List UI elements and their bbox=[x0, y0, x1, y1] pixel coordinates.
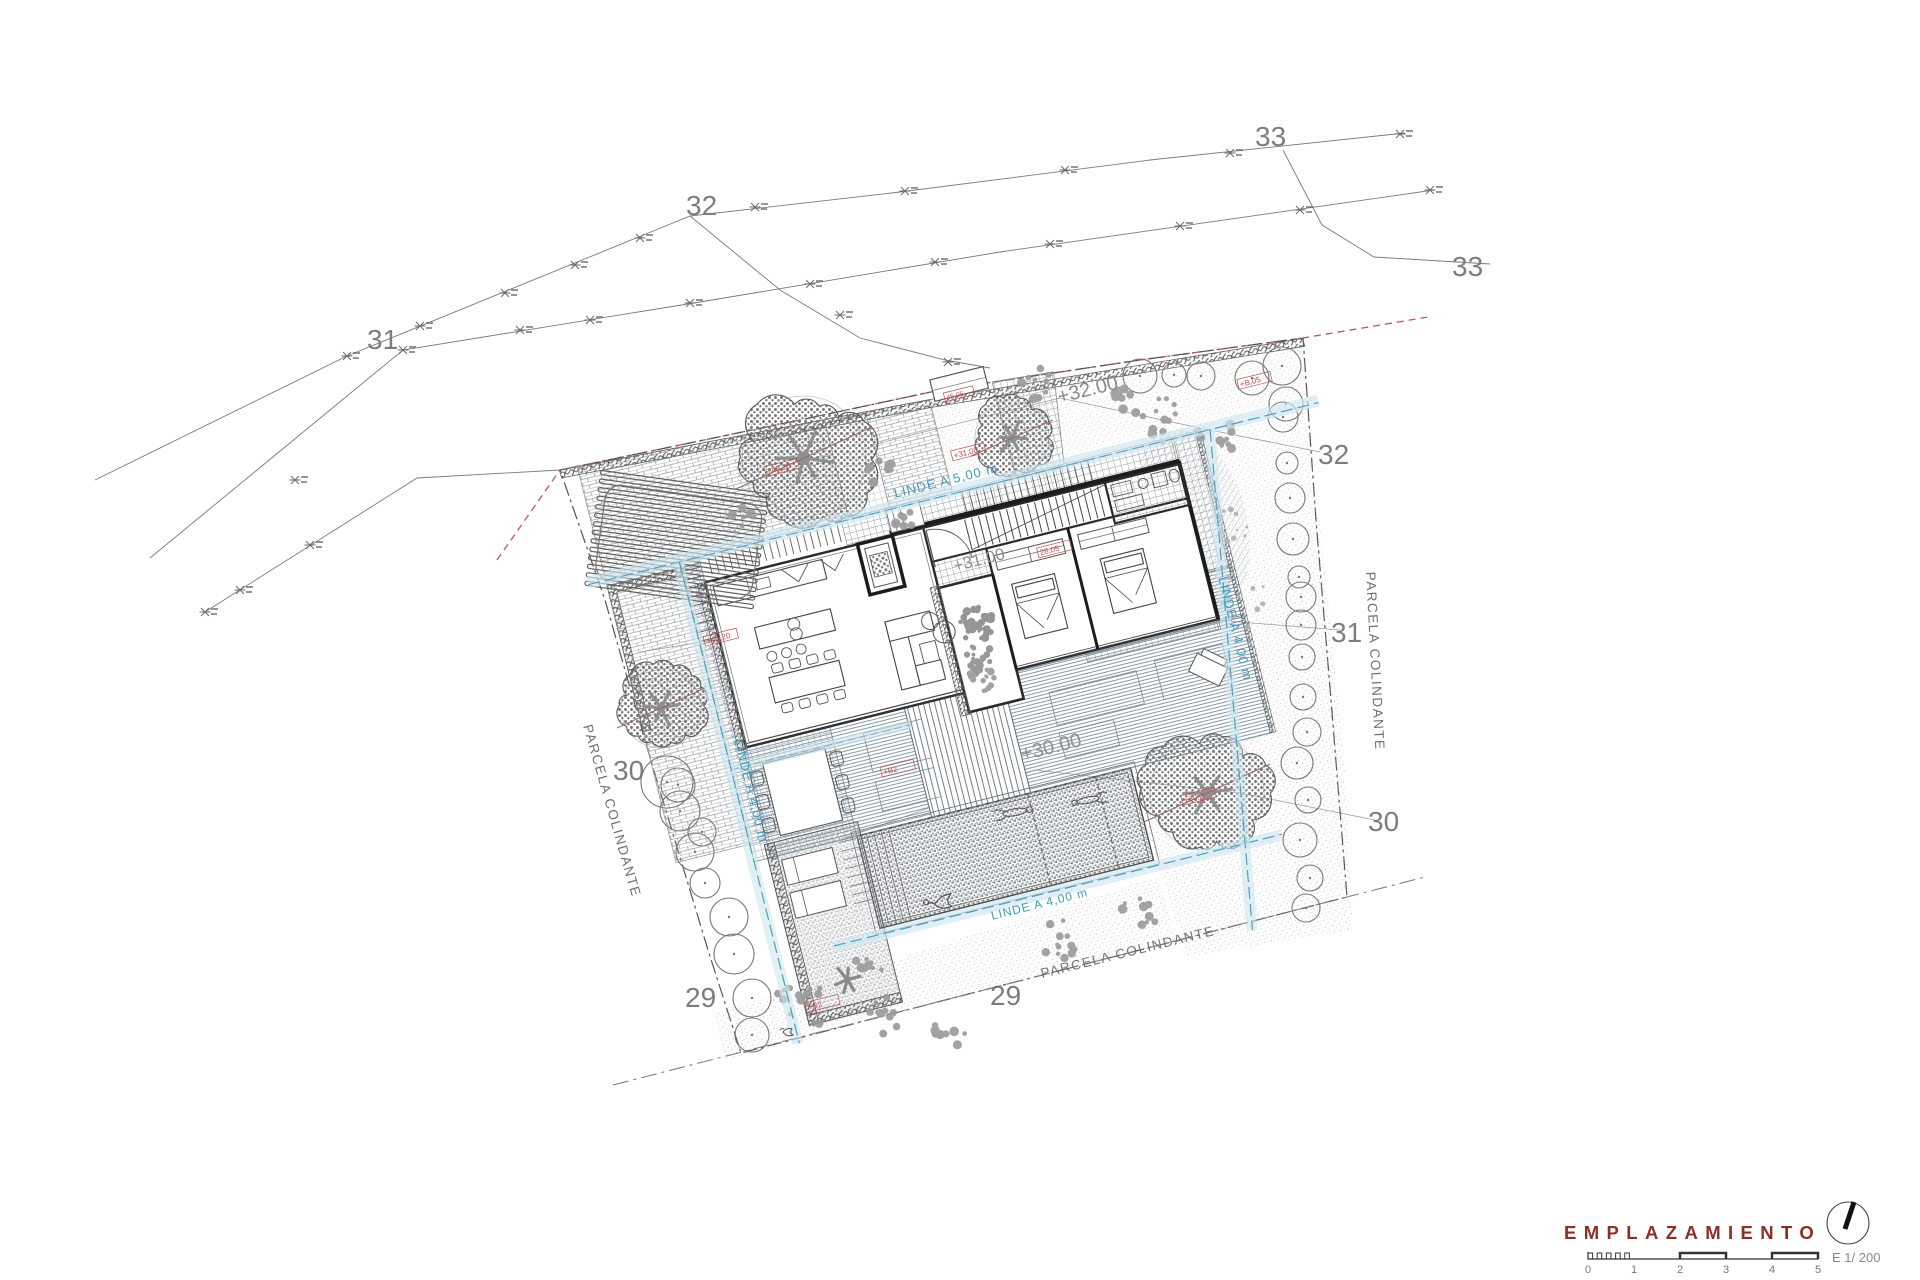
svg-text:30: 30 bbox=[1368, 806, 1399, 837]
svg-text:31: 31 bbox=[367, 324, 398, 355]
svg-text:32: 32 bbox=[1318, 439, 1349, 470]
svg-text:29: 29 bbox=[685, 982, 716, 1013]
svg-text:3: 3 bbox=[1723, 1264, 1729, 1276]
svg-text:0: 0 bbox=[1585, 1264, 1591, 1276]
svg-text:33: 33 bbox=[1255, 121, 1286, 152]
svg-text:2: 2 bbox=[1677, 1264, 1683, 1276]
svg-text:5: 5 bbox=[1815, 1264, 1821, 1276]
svg-text:32: 32 bbox=[686, 190, 717, 221]
svg-text:33: 33 bbox=[1452, 251, 1483, 282]
svg-text:1: 1 bbox=[1631, 1264, 1637, 1276]
svg-text:4: 4 bbox=[1769, 1264, 1775, 1276]
svg-text:E 1/ 200: E 1/ 200 bbox=[1832, 1250, 1880, 1265]
svg-text:EMPLAZAMIENTO: EMPLAZAMIENTO bbox=[1564, 1222, 1821, 1243]
svg-text:31: 31 bbox=[1331, 617, 1362, 648]
svg-text:30: 30 bbox=[613, 755, 644, 786]
